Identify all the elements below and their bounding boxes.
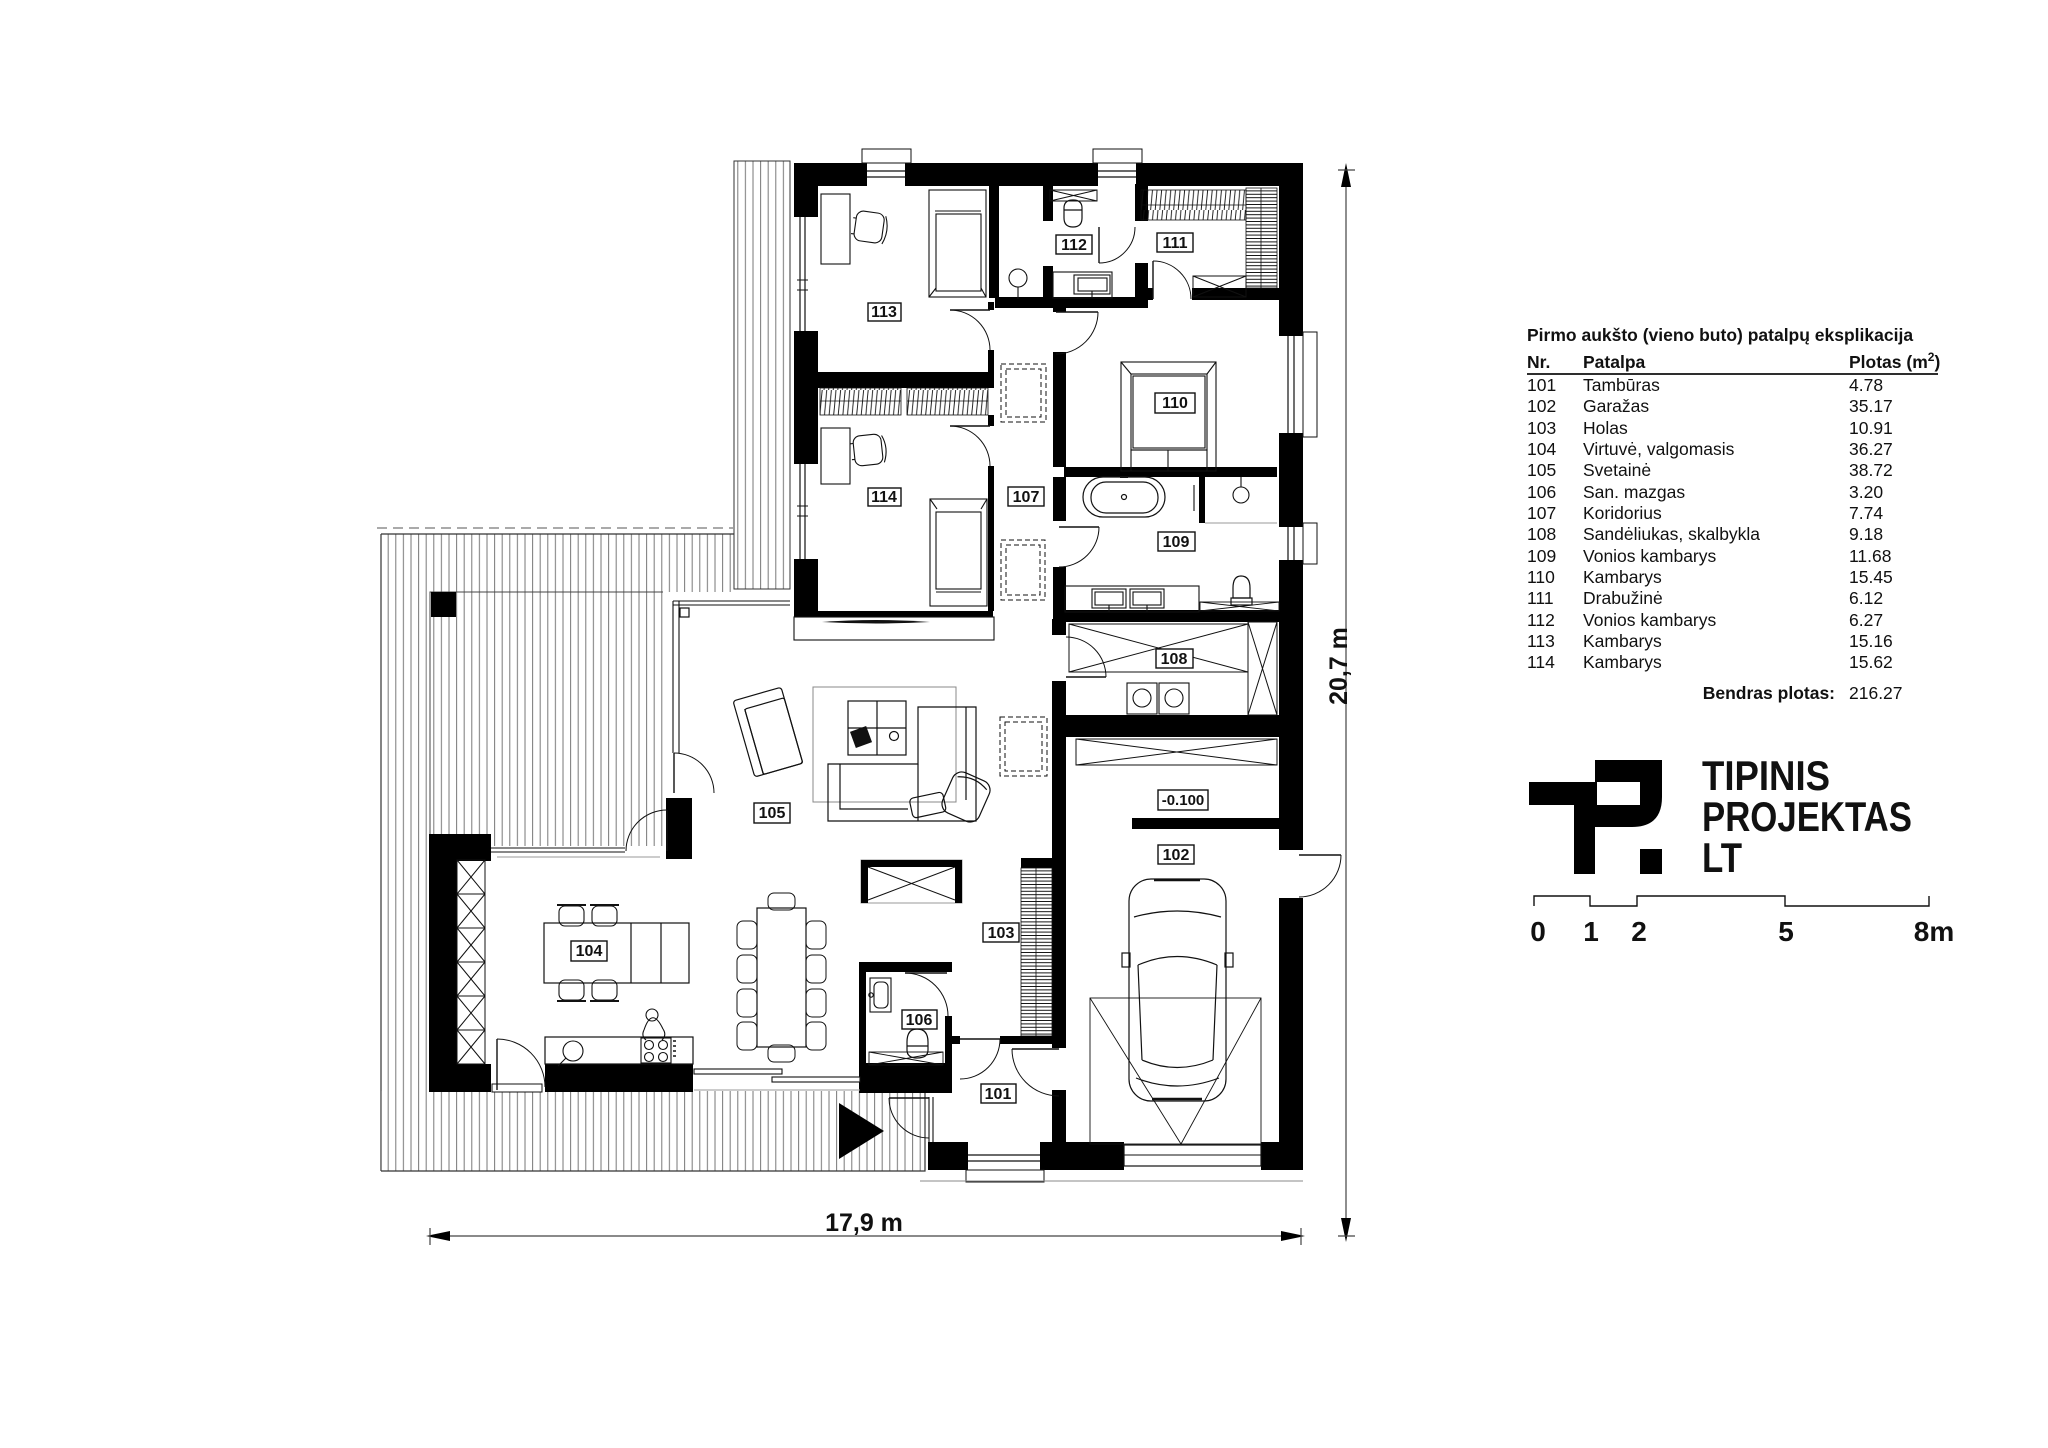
svg-text:35.17: 35.17 [1849, 396, 1893, 416]
svg-text:110: 110 [1527, 567, 1555, 587]
svg-text:105: 105 [1527, 460, 1556, 480]
svg-text:111: 111 [1163, 235, 1188, 252]
svg-text:36.27: 36.27 [1849, 439, 1893, 459]
svg-text:Kambarys: Kambarys [1583, 567, 1662, 587]
svg-text:Bendras plotas:: Bendras plotas: [1703, 683, 1835, 703]
svg-text:Vonios kambarys: Vonios kambarys [1583, 546, 1717, 566]
svg-text:105: 105 [759, 805, 786, 822]
svg-text:Sandėliukas, skalbykla: Sandėliukas, skalbykla [1583, 524, 1760, 544]
svg-text:103: 103 [1527, 418, 1556, 438]
svg-text:Virtuvė, valgomasis: Virtuvė, valgomasis [1583, 439, 1735, 459]
svg-text:Kambarys: Kambarys [1583, 631, 1662, 651]
svg-text:108: 108 [1161, 651, 1188, 668]
svg-text:Plotas (m2): Plotas (m2) [1849, 350, 1940, 372]
svg-text:San. mazgas: San. mazgas [1583, 482, 1685, 502]
svg-text:101: 101 [985, 1086, 1012, 1103]
svg-text:8m: 8m [1914, 916, 1954, 947]
svg-text:Pirmo aukšto (vieno buto) pata: Pirmo aukšto (vieno buto) patalpų ekspli… [1527, 325, 1913, 345]
svg-text:15.62: 15.62 [1849, 652, 1893, 672]
svg-text:106: 106 [906, 1012, 933, 1029]
svg-text:-0.100: -0.100 [1162, 792, 1205, 809]
svg-text:0: 0 [1530, 916, 1546, 947]
svg-text:Koridorius: Koridorius [1583, 503, 1662, 523]
svg-text:17,9 m: 17,9 m [825, 1209, 903, 1237]
svg-text:PROJEKTAS: PROJEKTAS [1702, 793, 1912, 840]
svg-text:103: 103 [988, 925, 1015, 942]
svg-text:9.18: 9.18 [1849, 524, 1883, 544]
svg-text:104: 104 [576, 943, 603, 960]
svg-text:106: 106 [1527, 482, 1556, 502]
svg-text:4.78: 4.78 [1849, 375, 1883, 395]
svg-text:6.27: 6.27 [1849, 610, 1883, 630]
svg-text:7.74: 7.74 [1849, 503, 1883, 523]
svg-text:110: 110 [1162, 395, 1188, 412]
svg-text:5: 5 [1778, 916, 1794, 947]
svg-text:38.72: 38.72 [1849, 460, 1893, 480]
svg-text:101: 101 [1527, 375, 1556, 395]
svg-text:2: 2 [1631, 916, 1647, 947]
svg-text:20,7 m: 20,7 m [1325, 627, 1353, 705]
svg-text:102: 102 [1527, 396, 1556, 416]
svg-text:Drabužinė: Drabužinė [1583, 588, 1663, 608]
svg-text:107: 107 [1013, 489, 1040, 506]
svg-text:109: 109 [1163, 534, 1190, 551]
svg-text:Garažas: Garažas [1583, 396, 1649, 416]
svg-text:Tambūras: Tambūras [1583, 375, 1660, 395]
svg-text:113: 113 [871, 304, 897, 321]
svg-text:Patalpa: Patalpa [1583, 352, 1646, 372]
svg-text:LT: LT [1702, 834, 1742, 881]
svg-text:10.91: 10.91 [1849, 418, 1893, 438]
svg-text:Kambarys: Kambarys [1583, 652, 1662, 672]
svg-text:216.27: 216.27 [1849, 683, 1903, 703]
svg-text:111: 111 [1527, 588, 1554, 608]
svg-text:108: 108 [1527, 524, 1556, 544]
svg-text:104: 104 [1527, 439, 1556, 459]
svg-text:112: 112 [1061, 237, 1087, 254]
svg-text:113: 113 [1527, 631, 1555, 651]
svg-text:1: 1 [1583, 916, 1599, 947]
svg-text:15.45: 15.45 [1849, 567, 1893, 587]
svg-text:107: 107 [1527, 503, 1556, 523]
svg-text:TIPINIS: TIPINIS [1702, 752, 1830, 799]
svg-text:112: 112 [1527, 610, 1555, 630]
svg-text:Vonios kambarys: Vonios kambarys [1583, 610, 1717, 630]
svg-text:114: 114 [871, 489, 897, 506]
svg-text:102: 102 [1163, 847, 1190, 864]
svg-text:3.20: 3.20 [1849, 482, 1883, 502]
svg-text:Svetainė: Svetainė [1583, 460, 1651, 480]
svg-text:109: 109 [1527, 546, 1556, 566]
svg-text:15.16: 15.16 [1849, 631, 1893, 651]
svg-text:11.68: 11.68 [1849, 546, 1892, 566]
svg-text:Holas: Holas [1583, 418, 1628, 438]
svg-text:Nr.: Nr. [1527, 352, 1550, 372]
svg-text:6.12: 6.12 [1849, 588, 1883, 608]
svg-text:114: 114 [1527, 652, 1555, 672]
